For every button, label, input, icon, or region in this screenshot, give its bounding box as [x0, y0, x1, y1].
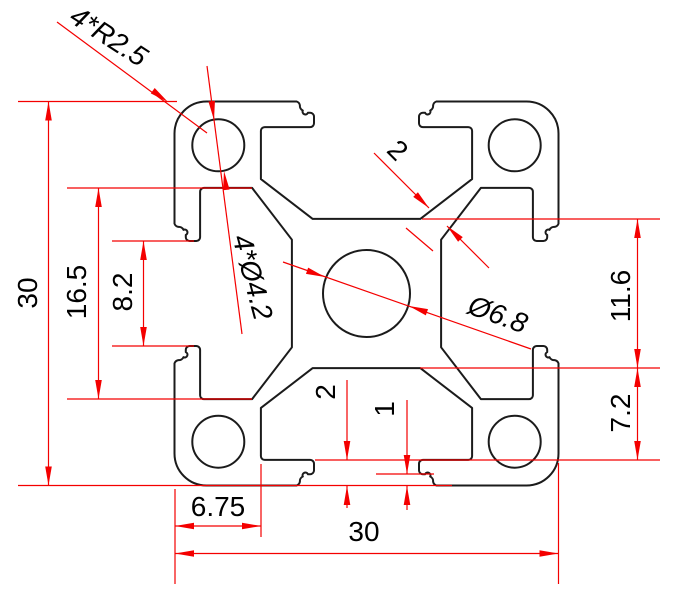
profile-outline [175, 102, 559, 486]
arrowhead [634, 349, 641, 368]
arrowhead [404, 486, 411, 505]
dimension-line [406, 228, 433, 251]
drawing-canvas: 30 16.5 8.2 11.6 7.2 6.75 30 2 1 2 4*R2.… [0, 0, 681, 601]
dim-notch-offset: 1 [369, 401, 400, 417]
arrowhead [45, 467, 52, 486]
arrowhead [140, 241, 147, 260]
arrowhead [175, 523, 194, 530]
dim-overall-height: 30 [12, 277, 43, 308]
dim-edge-to-cavity: 6.75 [191, 491, 246, 522]
arrowhead [140, 327, 147, 346]
arrowhead [306, 268, 325, 277]
arrowhead [344, 441, 351, 460]
dim-corner-radius: 4*R2.5 [64, 0, 153, 73]
dim-slot-opening: 8.2 [107, 273, 138, 312]
dim-cavity-depth: 7.2 [605, 394, 636, 433]
arrowhead [175, 550, 194, 557]
arrowhead [208, 101, 215, 120]
arrowhead [151, 88, 168, 102]
dim-web-thickness: 2 [381, 134, 414, 167]
arrowhead [413, 192, 429, 208]
center-hole [323, 250, 410, 337]
arrowhead [95, 188, 102, 207]
profile-drawing: 30 16.5 8.2 11.6 7.2 6.75 30 2 1 2 4*R2.… [0, 0, 681, 601]
arrowhead [409, 306, 428, 315]
arrowhead [223, 171, 230, 190]
arrowhead [404, 455, 411, 474]
corner-hole [192, 119, 244, 171]
corner-hole [192, 416, 244, 468]
arrowhead [95, 380, 102, 399]
arrowhead [344, 486, 351, 505]
arrowhead [242, 523, 261, 530]
dim-lip-thickness: 2 [310, 384, 341, 400]
arrowhead [634, 219, 641, 238]
dim-overall-width: 30 [348, 516, 379, 547]
dim-center-hole: Ø6.8 [463, 289, 532, 339]
arrowhead [45, 102, 52, 121]
dim-cavity-width: 16.5 [61, 265, 92, 320]
extrusion-outline [175, 102, 559, 486]
arrowhead [540, 550, 559, 557]
arrowhead [634, 441, 641, 460]
arrowhead [634, 368, 641, 387]
dim-lip-to-lip: 11.6 [605, 270, 636, 322]
corner-hole [489, 119, 541, 171]
arrowhead [447, 226, 463, 242]
